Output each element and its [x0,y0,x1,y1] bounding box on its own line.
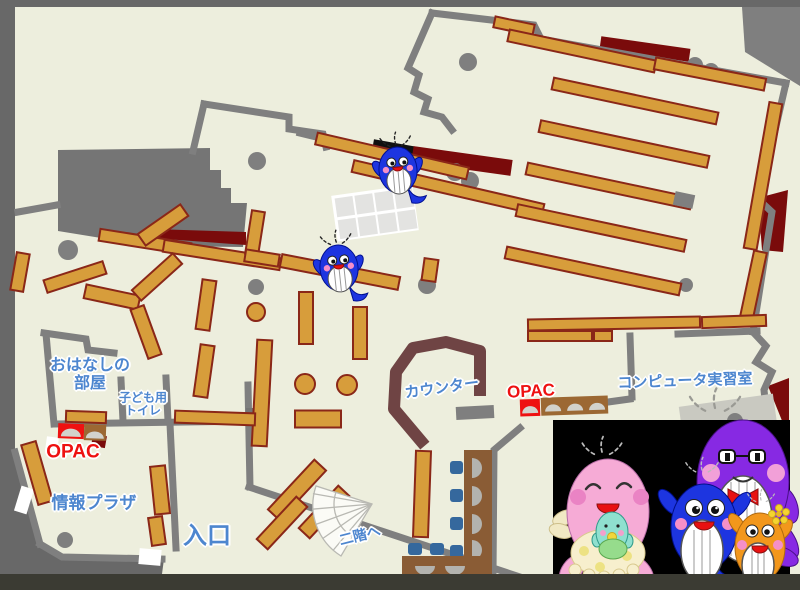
library-floor-map: おはなしの 部屋 子ども用 トイレ OPAC 情報プラザ 入口 二階へ カウンタ… [0,0,800,590]
room-label-storytelling-line1: おはなしの [50,357,130,375]
opac-station-left [58,423,107,441]
room-label-info-plaza: 情報プラザ [52,493,137,512]
room-label-storytelling: おはなしの 部屋 [50,357,130,393]
opac-label-left: OPAC [46,441,99,462]
entrance-label: 入口 [183,524,231,551]
opac-label-right: OPAC [507,380,556,402]
room-label-kids-toilet-line2: トイレ [119,405,167,418]
room-label-kids-toilet: 子ども用 トイレ [119,392,167,419]
door-gap [138,548,161,566]
frame-bottom [0,574,800,590]
